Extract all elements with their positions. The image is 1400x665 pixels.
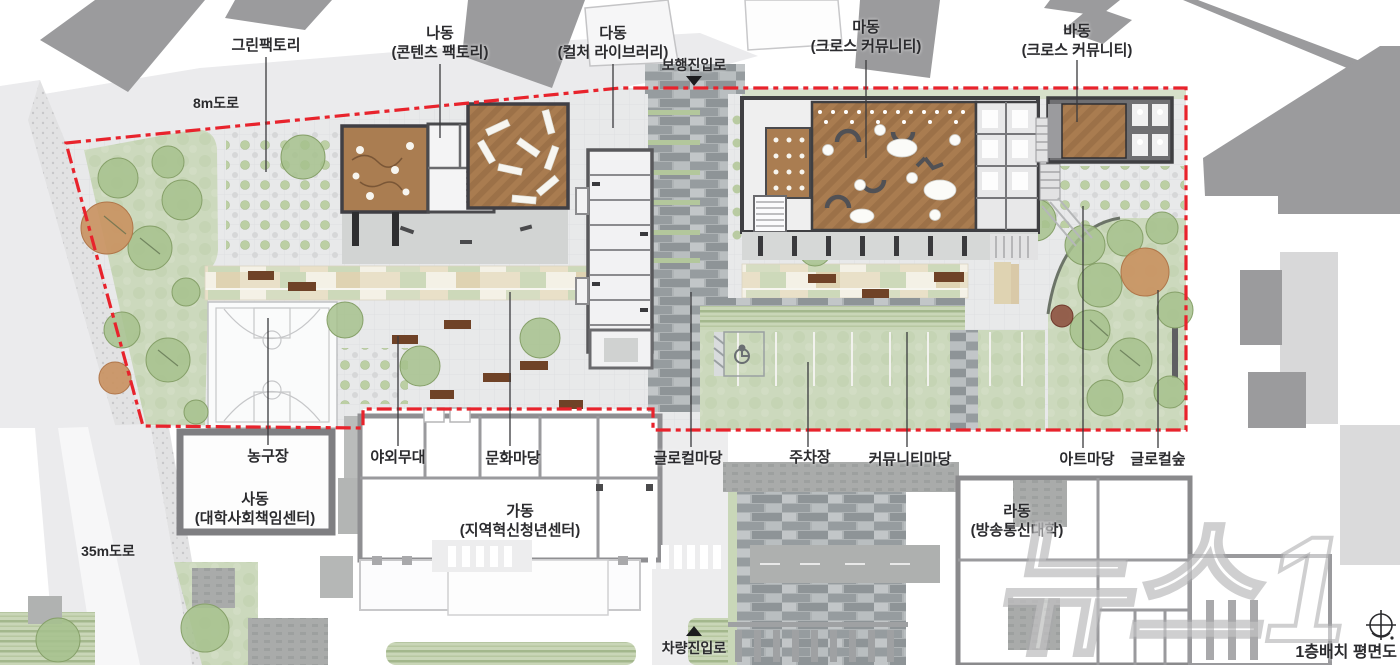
label-art-yard: 아트마당 xyxy=(1059,451,1114,470)
building-ra-name: 라동 xyxy=(971,503,1064,522)
culture-yard-text: 문화마당 xyxy=(485,450,540,469)
building-da-desc: (컬처 라이브러리) xyxy=(558,44,669,63)
north-compass-icon xyxy=(1366,610,1396,640)
label-basketball: 농구장 xyxy=(247,448,288,467)
building-ba-desc: (크로스 커뮤니티) xyxy=(1022,42,1133,61)
label-building-ga: 가동 (지역혁신청년센터) xyxy=(460,503,580,541)
building-na-name: 나동 xyxy=(392,25,489,44)
label-building-ba: 바동 (크로스 커뮤니티) xyxy=(1022,23,1133,61)
building-ma-name: 마동 xyxy=(811,19,922,38)
label-glocal-forest: 글로컬숲 xyxy=(1130,451,1185,470)
label-building-sa: 사동 (대학사회책임센터) xyxy=(195,491,315,529)
label-road-8m: 8m도로 xyxy=(193,95,239,113)
vehicle-entry-arrow-icon xyxy=(686,626,702,636)
outdoor-stage-text: 야외무대 xyxy=(370,449,425,468)
label-pedestrian-entry: 보행진입로 xyxy=(662,57,726,75)
building-da-name: 다동 xyxy=(558,25,669,44)
glocal-forest-text: 글로컬숲 xyxy=(1130,451,1185,470)
building-da-hall xyxy=(468,104,568,208)
plan-title-text: 1층배치 평면도 xyxy=(1295,643,1397,663)
pedestrian-entry-arrow-icon xyxy=(686,76,702,86)
building-ba-name: 바동 xyxy=(1022,23,1133,42)
label-glocal-yard: 글로컬마당 xyxy=(653,450,722,469)
label-building-ma: 마동 (크로스 커뮤니티) xyxy=(811,19,922,57)
building-da-wing xyxy=(576,150,652,368)
label-building-ra: 라동 (방송통신대학) xyxy=(971,503,1064,541)
building-ma-desc: (크로스 커뮤니티) xyxy=(811,38,922,57)
plan-title: 1층배치 평면도 xyxy=(1295,643,1397,663)
label-parking: 주차장 xyxy=(789,449,830,468)
building-na-desc: (콘텐츠 팩토리) xyxy=(392,44,489,63)
vehicle-entry-text: 차량진입로 xyxy=(662,640,726,658)
parking-field xyxy=(700,330,1045,430)
label-vehicle-entry: 차량진입로 xyxy=(662,640,726,658)
label-building-da: 다동 (컬처 라이브러리) xyxy=(558,25,669,63)
basketball-text: 농구장 xyxy=(247,448,288,467)
building-ga-name: 가동 xyxy=(460,503,580,522)
green-factory-text: 그린팩토리 xyxy=(231,37,300,56)
label-building-na: 나동 (콘텐츠 팩토리) xyxy=(392,25,489,63)
site-plan-image: 그린팩토리 8m도로 나동 (콘텐츠 팩토리) 다동 (컬처 라이브러리) 보행… xyxy=(0,0,1400,665)
label-green-factory: 그린팩토리 xyxy=(231,37,300,56)
art-yard-text: 아트마당 xyxy=(1059,451,1114,470)
label-road-35m: 35m도로 xyxy=(81,543,135,561)
road-35m-text: 35m도로 xyxy=(81,543,135,561)
building-ga-desc: (지역혁신청년센터) xyxy=(460,522,580,541)
building-ba-plan xyxy=(1036,98,1172,162)
glocal-yard-text: 글로컬마당 xyxy=(653,450,722,469)
building-sa-desc: (대학사회책임센터) xyxy=(195,510,315,529)
community-yard-text: 커뮤니티마당 xyxy=(869,451,952,470)
parking-text: 주차장 xyxy=(789,449,830,468)
label-community-yard: 커뮤니티마당 xyxy=(869,451,952,470)
label-culture-yard: 문화마당 xyxy=(485,450,540,469)
label-outdoor-stage: 야외무대 xyxy=(370,449,425,468)
building-ra-desc: (방송통신대학) xyxy=(971,522,1064,541)
pedestrian-entry-text: 보행진입로 xyxy=(662,57,726,75)
basketball-court xyxy=(208,302,337,428)
building-sa-name: 사동 xyxy=(195,491,315,510)
crosswalk-west xyxy=(432,540,532,572)
road-8m-text: 8m도로 xyxy=(193,95,239,113)
